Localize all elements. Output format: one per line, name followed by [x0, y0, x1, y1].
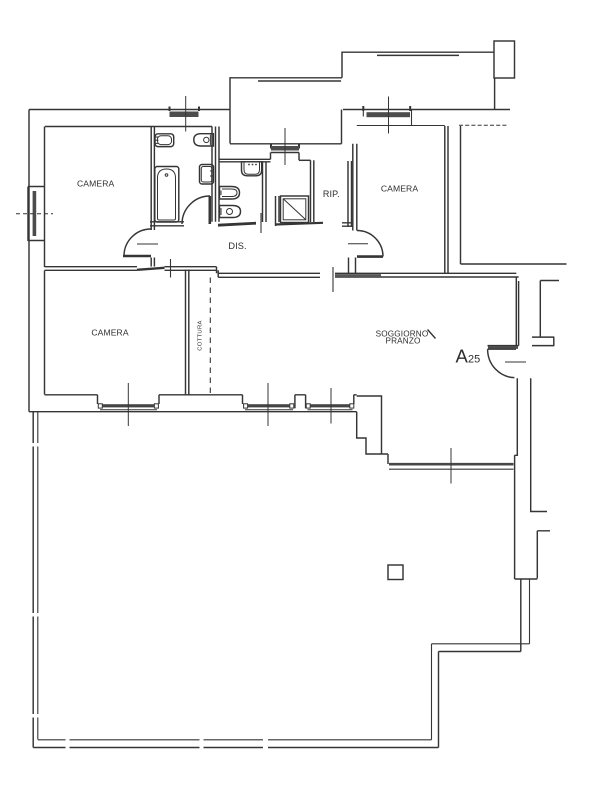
svg-text:COTTURA: COTTURA: [198, 320, 204, 351]
svg-text:A: A: [456, 346, 469, 367]
svg-text:RIP.: RIP.: [323, 189, 340, 199]
svg-text:CAMERA: CAMERA: [91, 327, 129, 337]
svg-text:CAMERA: CAMERA: [381, 183, 419, 193]
svg-text:25: 25: [468, 354, 480, 366]
svg-text:CAMERA: CAMERA: [77, 179, 115, 189]
svg-text:DIS.: DIS.: [228, 241, 246, 251]
svg-text:PRANZO: PRANZO: [385, 336, 420, 345]
